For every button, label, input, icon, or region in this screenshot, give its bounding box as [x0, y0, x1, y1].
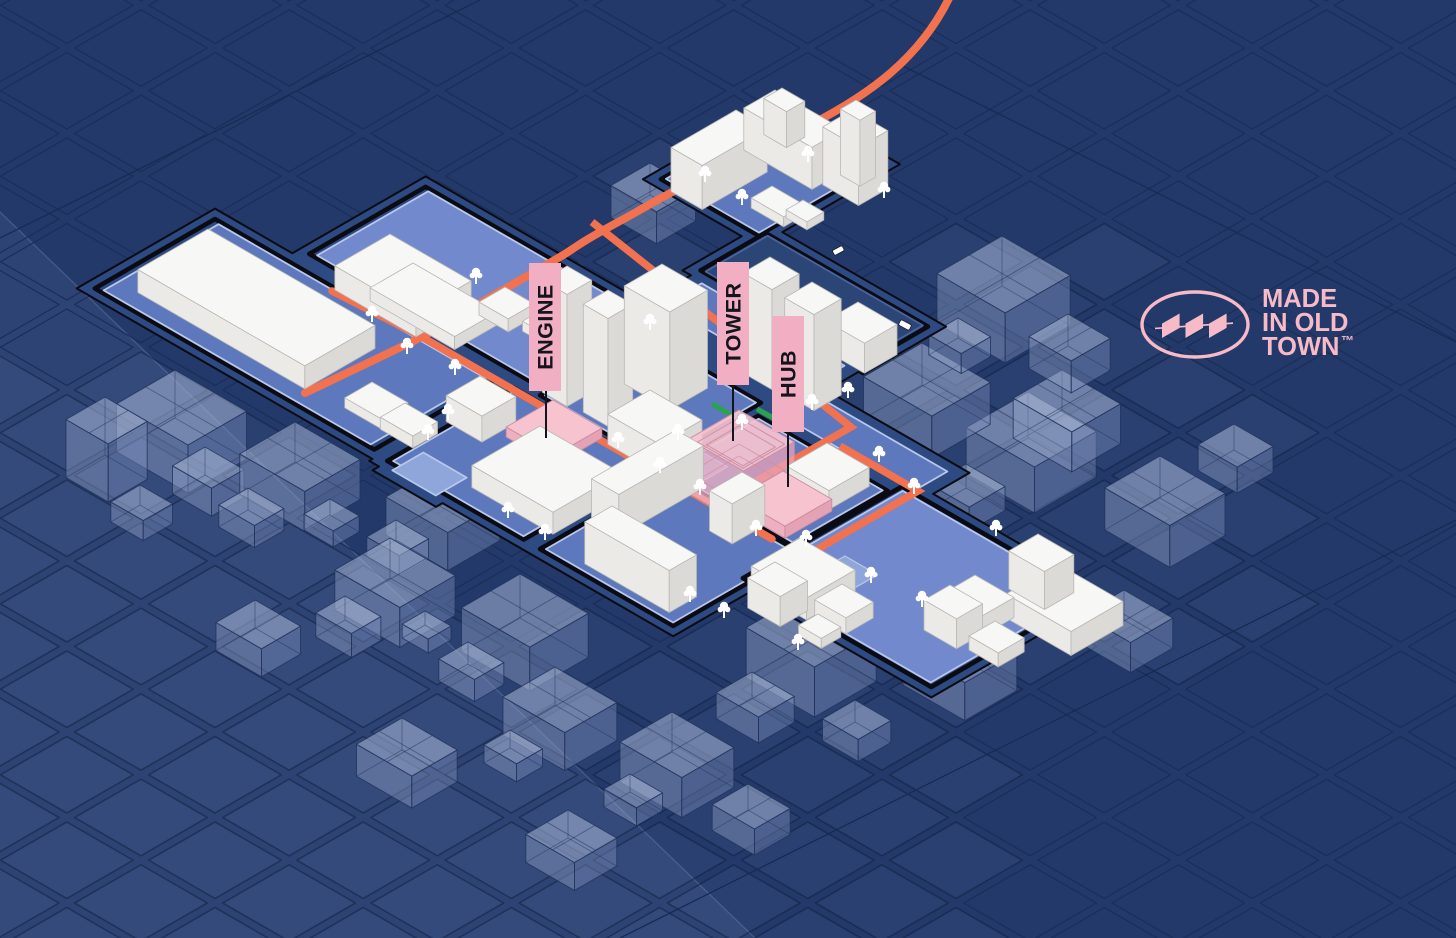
svg-text:ENGINE: ENGINE [534, 284, 558, 369]
svg-text:™: ™ [1341, 333, 1354, 348]
svg-text:TOWN: TOWN [1262, 333, 1339, 361]
svg-text:TOWER: TOWER [722, 282, 746, 364]
svg-text:HUB: HUB [777, 350, 801, 398]
